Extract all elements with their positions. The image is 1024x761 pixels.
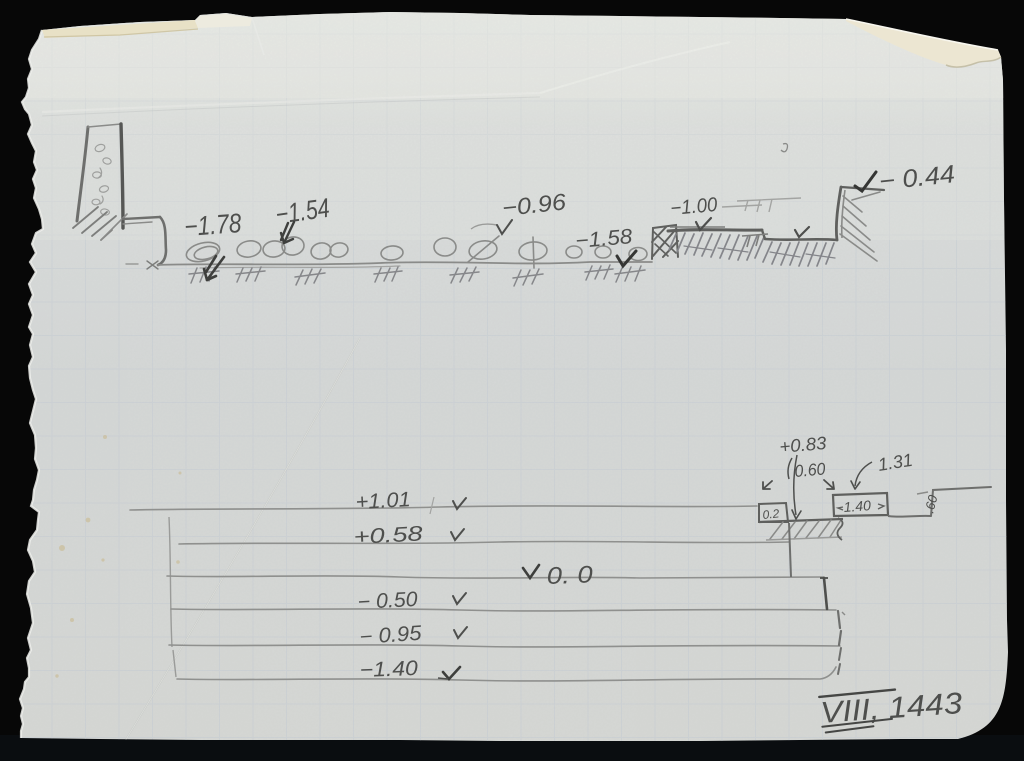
svg-text:+0.83: +0.83 [779, 433, 828, 457]
svg-text:−1.78: −1.78 [183, 208, 242, 242]
svg-text:− 0.50: − 0.50 [357, 588, 418, 614]
svg-text:1.40: 1.40 [843, 497, 872, 515]
svg-text:0. 0: 0. 0 [546, 561, 594, 590]
svg-text:+0.58: +0.58 [353, 522, 424, 549]
svg-text:0.2: 0.2 [762, 506, 780, 522]
svg-text:− 0.95: − 0.95 [359, 622, 423, 649]
svg-text:−1.00: −1.00 [670, 194, 719, 220]
svg-text:+1.01: +1.01 [355, 488, 411, 514]
svg-text:−1.40: −1.40 [359, 657, 418, 682]
svg-text:0.60: 0.60 [794, 459, 827, 481]
